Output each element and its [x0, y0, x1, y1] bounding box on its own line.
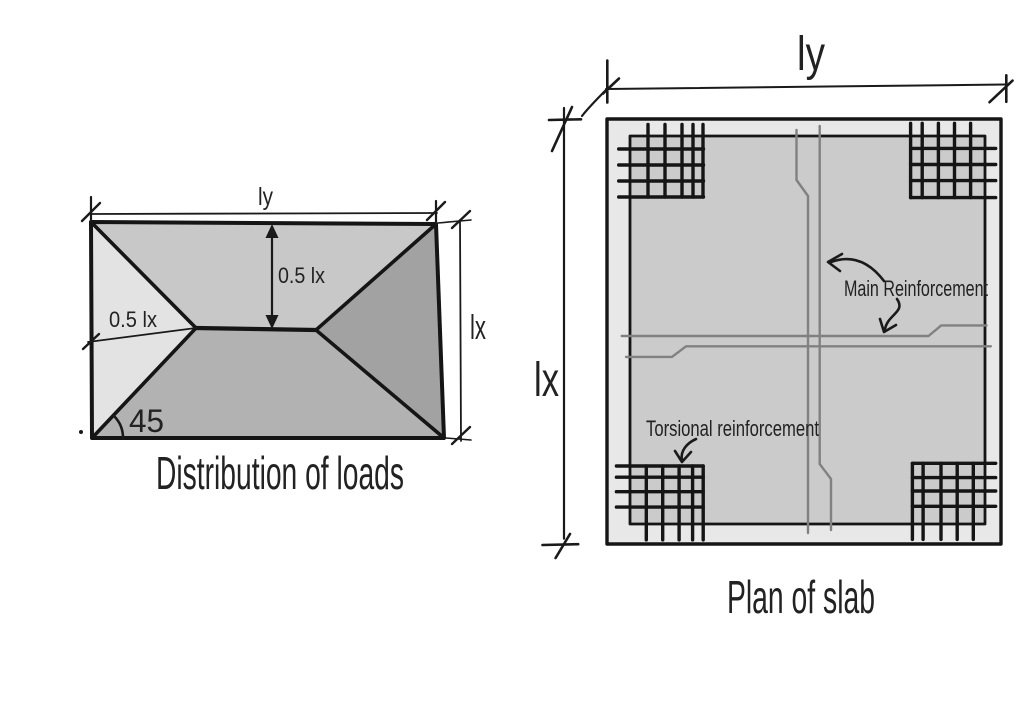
- svg-text:Torsional reinforcement: Torsional reinforcement: [646, 416, 819, 441]
- svg-text:ly: ly: [797, 28, 825, 81]
- svg-text:Main Reinforcement: Main Reinforcement: [844, 276, 988, 301]
- svg-text:ly: ly: [258, 183, 273, 211]
- svg-text:0.5 lx: 0.5 lx: [109, 307, 157, 332]
- svg-text:45: 45: [129, 403, 164, 439]
- svg-text:0.5 lx: 0.5 lx: [278, 263, 325, 288]
- svg-text:lx: lx: [470, 309, 486, 347]
- svg-text:Distribution of loads: Distribution of loads: [156, 447, 404, 499]
- svg-text:lx: lx: [534, 354, 559, 407]
- svg-text:Plan of slab: Plan of slab: [727, 571, 875, 623]
